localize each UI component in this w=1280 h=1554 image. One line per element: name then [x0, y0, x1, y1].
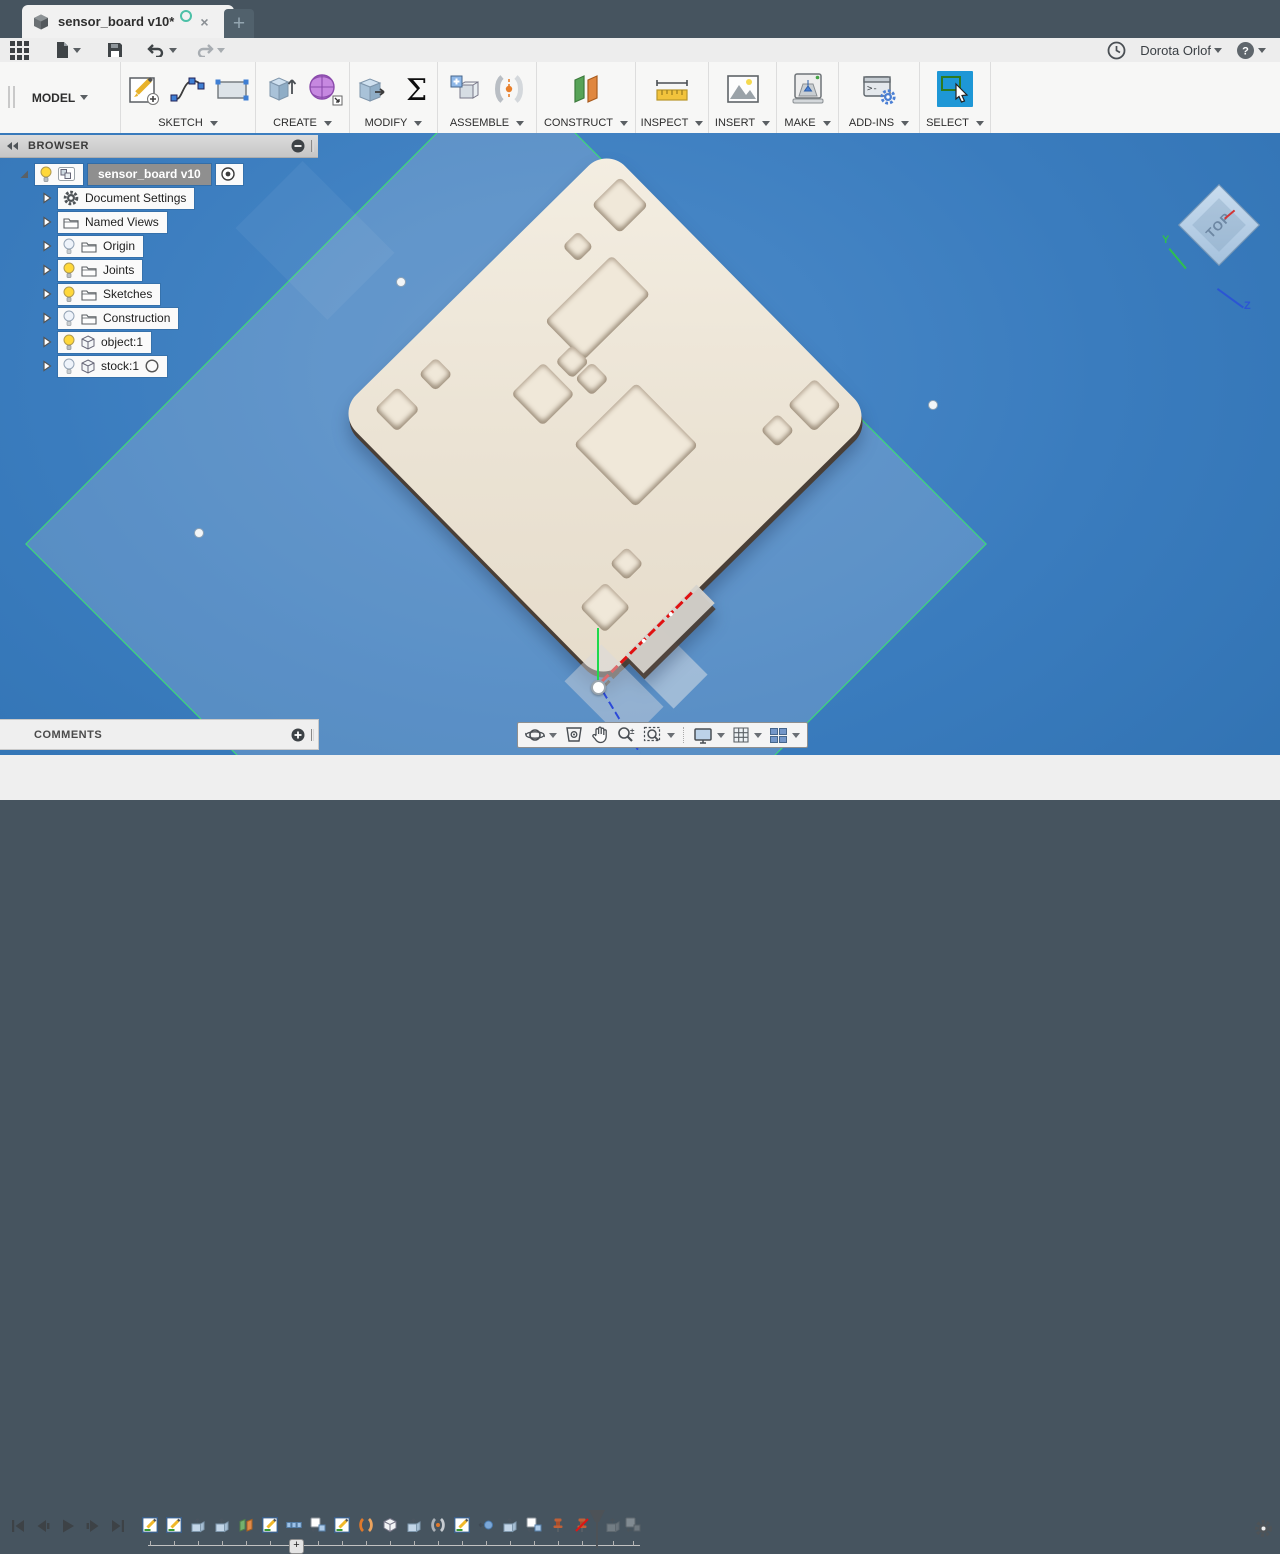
timeline-tick [486, 1541, 487, 1546]
board-pocket[interactable] [545, 255, 651, 360]
visibility-bulb-icon[interactable] [63, 358, 75, 375]
redo-button[interactable] [191, 38, 229, 62]
collapse-arrow-icon[interactable] [42, 288, 52, 300]
timeline-feature-extrude[interactable] [406, 1517, 422, 1533]
plane-button[interactable] [567, 69, 605, 109]
help-menu[interactable]: ? [1236, 41, 1266, 60]
group-label-text: INSERT [715, 117, 755, 129]
user-area: Dorota Orlof ? [1107, 41, 1280, 60]
go-to-end-button[interactable] [110, 1518, 126, 1534]
component-icon [58, 167, 75, 181]
sketch-point[interactable] [928, 400, 938, 410]
pan-icon [591, 726, 609, 744]
board-pocket[interactable] [760, 413, 794, 447]
new-component-button[interactable] [446, 69, 484, 109]
timeline-feature-sketch[interactable] [334, 1517, 350, 1533]
group-label-text: MODIFY [365, 117, 408, 129]
zoom-button[interactable]: ± [614, 725, 638, 745]
timeline-tick [222, 1541, 223, 1546]
collapse-panel-icon[interactable] [6, 141, 20, 151]
timeline-tick [366, 1541, 367, 1546]
sketch-point[interactable] [396, 277, 406, 287]
visibility-bulb-icon[interactable] [40, 166, 52, 183]
timeline-tick [342, 1541, 343, 1546]
collapse-arrow-icon[interactable] [42, 336, 52, 348]
group-label-text: SKETCH [158, 117, 203, 129]
orbit-icon [525, 726, 545, 744]
ribbon-group-label[interactable]: MODIFY [350, 113, 437, 133]
board-pocket[interactable] [574, 383, 698, 507]
board-pocket[interactable] [375, 387, 420, 432]
step-back-button[interactable] [35, 1518, 51, 1534]
timeline-feature-pin-off[interactable] [574, 1517, 590, 1533]
group-label-text: ADD-INS [849, 117, 894, 129]
board-pocket[interactable] [562, 231, 593, 262]
play-icon [60, 1518, 76, 1534]
browser-row-label: Joints [103, 263, 134, 277]
group-label-text: CONSTRUCT [544, 117, 613, 129]
sketch-point[interactable] [194, 528, 204, 538]
timeline-tick [198, 1541, 199, 1546]
comments-panel-title: COMMENTS [34, 729, 102, 741]
timeline-settings-icon[interactable] [1254, 1519, 1273, 1538]
joint-button[interactable] [490, 69, 528, 109]
timeline-feature-joint2[interactable] [430, 1517, 446, 1533]
ribbon-group-label[interactable]: INSERT [709, 113, 776, 133]
timeline-tick [246, 1541, 247, 1546]
expand-arrow-icon[interactable] [18, 168, 30, 180]
timeline-feature-component-suppressed[interactable] [625, 1517, 641, 1533]
timeline-feature-sketch[interactable] [166, 1517, 182, 1533]
visibility-bulb-icon[interactable] [63, 310, 75, 327]
rectangle-button[interactable] [213, 69, 251, 109]
gear-icon [63, 190, 79, 206]
dropdown-caret-icon[interactable] [717, 733, 725, 738]
timeline-feature-pin[interactable] [550, 1517, 566, 1533]
folder-icon [81, 264, 97, 277]
ribbon-group-label[interactable]: CREATE [256, 113, 349, 133]
press-pull-icon [355, 72, 389, 106]
zoom-icon: ± [616, 726, 636, 744]
group-label-text: ASSEMBLE [450, 117, 509, 129]
browser-row-sensor-board-v10[interactable]: sensor_board v10 [18, 162, 318, 186]
timeline-tick [582, 1541, 583, 1546]
parameters-icon: Σ [403, 72, 429, 106]
timeline-feature-extrude[interactable] [214, 1517, 230, 1533]
y-axis-indicator [1168, 248, 1186, 269]
svg-text:?: ? [1242, 45, 1249, 57]
dropdown-caret-icon[interactable] [667, 733, 675, 738]
measure-icon [654, 74, 690, 104]
timeline-tick [510, 1541, 511, 1546]
save-button[interactable] [103, 38, 127, 62]
browser-row-label: Origin [103, 239, 135, 253]
browser-row-label: Document Settings [85, 191, 186, 205]
spline-button[interactable] [169, 69, 207, 109]
timeline-tick [438, 1541, 439, 1546]
group-label-text: MAKE [784, 117, 815, 129]
select-icon [940, 74, 970, 104]
timeline-bar: + [0, 755, 1280, 800]
ribbon-group-modify: ΣMODIFY [350, 62, 438, 133]
board-pocket[interactable] [610, 547, 644, 581]
scripts-icon: >- [861, 73, 897, 105]
ribbon-group-label[interactable]: SELECT [920, 113, 990, 133]
timeline-tick [558, 1541, 559, 1546]
insert-image-button[interactable] [724, 69, 762, 109]
browser-row-joints[interactable]: Joints [18, 258, 318, 282]
dropdown-caret-icon[interactable] [792, 733, 800, 738]
application-bar: Dorota Orlof ? [0, 38, 1280, 63]
ribbon-group-label[interactable]: SKETCH [121, 113, 255, 133]
ribbon-group-label[interactable]: ADD-INS [839, 113, 919, 133]
ribbon-group-label[interactable]: CONSTRUCT [537, 113, 635, 133]
ribbon-group-select: SELECT [920, 62, 991, 133]
timeline-playhead-line [596, 1519, 598, 1548]
panel-drag-handle[interactable] [311, 140, 312, 152]
document-tab[interactable]: sensor_board v10* × [22, 5, 234, 38]
browser-row-label: Sketches [103, 287, 152, 301]
y-axis-label: Y [1162, 234, 1169, 246]
create-sketch-button[interactable] [125, 69, 163, 109]
undo-icon [147, 43, 166, 57]
svg-text:±: ± [630, 727, 635, 736]
timeline-feature-sketch[interactable] [262, 1517, 278, 1533]
workspace-label: MODEL [32, 91, 75, 105]
svg-text:>-: >- [867, 84, 878, 94]
board-pocket[interactable] [580, 582, 631, 633]
y-axis-line [597, 628, 599, 684]
toolbar-grip [8, 86, 15, 108]
press-pull-button[interactable] [353, 69, 391, 109]
svg-text:Σ: Σ [406, 73, 427, 106]
browser-row-label: Construction [103, 311, 170, 325]
measure-button[interactable] [653, 69, 691, 109]
browser-row-construction[interactable]: Construction [18, 306, 318, 330]
scripts-button[interactable]: >- [860, 69, 898, 109]
timeline-tick [633, 1541, 634, 1546]
create-sketch-icon [127, 72, 161, 106]
fit-button[interactable] [641, 725, 677, 745]
user-menu[interactable]: Dorota Orlof [1140, 43, 1222, 58]
browser-row-named-views[interactable]: Named Views [18, 210, 318, 234]
visibility-bulb-icon[interactable] [63, 286, 75, 303]
collapse-arrow-icon[interactable] [42, 312, 52, 324]
timeline-tick [270, 1541, 271, 1546]
timeline-tick [414, 1541, 415, 1546]
browser-row-origin[interactable]: Origin [18, 234, 318, 258]
redo-icon [195, 43, 214, 57]
folder-icon [81, 312, 97, 325]
folder-icon [81, 288, 97, 301]
ribbon-group-create: CREATE [256, 62, 350, 133]
browser-row-label: stock:1 [101, 359, 139, 373]
activate-component-icon[interactable] [221, 167, 235, 181]
ribbon-group-add-ins: >-ADD-INS [839, 62, 920, 133]
ribbon-group-label[interactable]: INSPECT [636, 113, 708, 133]
timeline-feature-sketch[interactable] [454, 1517, 470, 1533]
collapse-arrow-icon[interactable] [42, 192, 52, 204]
timeline-feature-component[interactable] [310, 1517, 326, 1533]
print-button[interactable] [789, 69, 827, 109]
timeline-feature-body[interactable] [382, 1517, 398, 1533]
browser-row-label: object:1 [101, 335, 143, 349]
extrude-icon [264, 72, 298, 106]
panel-drag-handle[interactable] [311, 729, 312, 741]
rectangle-icon [214, 75, 250, 103]
timeline-tick [174, 1541, 175, 1546]
spline-icon [170, 74, 206, 104]
visibility-bulb-icon[interactable] [63, 334, 75, 351]
form-button[interactable] [306, 69, 344, 109]
group-label-text: SELECT [926, 117, 969, 129]
new-tab-button[interactable]: + [224, 9, 254, 38]
look-at-icon [564, 727, 584, 743]
comments-panel-header[interactable]: COMMENTS [0, 719, 319, 750]
navigation-bar: ± [517, 722, 808, 748]
orbit-button[interactable] [523, 725, 559, 745]
go-to-start-icon [10, 1518, 26, 1534]
look-at-button[interactable] [562, 726, 586, 744]
user-name: Dorota Orlof [1140, 43, 1211, 58]
group-label-text: CREATE [273, 117, 317, 129]
timeline-feature-pattern[interactable] [286, 1517, 302, 1533]
cube-icon [32, 13, 50, 31]
extrude-button[interactable] [262, 69, 300, 109]
workspace-selector[interactable]: MODEL [0, 62, 121, 133]
browser-row-object-1[interactable]: object:1 [18, 330, 318, 354]
body-icon [81, 335, 95, 350]
body-icon [81, 359, 95, 374]
app-grid-icon [10, 41, 29, 60]
browser-tree: sensor_board v10Document SettingsNamed V… [18, 162, 318, 378]
browser-row-sketches[interactable]: Sketches [18, 282, 318, 306]
timeline-feature-sketch[interactable] [142, 1517, 158, 1533]
go-to-start-button[interactable] [10, 1518, 26, 1534]
fit-icon [643, 726, 663, 744]
timeline-tick [534, 1541, 535, 1546]
timeline-zoom-handle[interactable]: + [289, 1539, 304, 1554]
add-comment-icon[interactable] [291, 728, 305, 742]
folder-icon [81, 240, 97, 253]
play-button[interactable] [60, 1518, 76, 1534]
go-to-end-icon [110, 1518, 126, 1534]
insert-image-icon [726, 73, 760, 105]
timeline-feature-extrude-suppressed[interactable] [605, 1517, 621, 1533]
undo-button[interactable] [143, 38, 181, 62]
document-title: sensor_board v10* [58, 14, 174, 29]
display-button[interactable] [691, 726, 727, 745]
browser-row-document-settings[interactable]: Document Settings [18, 186, 318, 210]
step-back-icon [35, 1518, 51, 1534]
ribbon-group-label[interactable]: ASSEMBLE [438, 113, 536, 133]
display-icon [693, 727, 713, 744]
browser-row-label: sensor_board v10 [98, 167, 201, 181]
timeline-tick [390, 1541, 391, 1546]
timeline-feature-joint[interactable] [358, 1517, 374, 1533]
timeline-feature-plane[interactable] [238, 1517, 254, 1533]
origin-point[interactable] [591, 680, 606, 695]
board-pocket[interactable] [788, 378, 842, 432]
activate-circle-icon[interactable] [145, 359, 159, 373]
file-icon [55, 41, 70, 59]
print-icon [791, 72, 825, 106]
z-axis-indicator [1217, 288, 1244, 308]
timeline-tick [462, 1541, 463, 1546]
z-axis-label: Z [1244, 300, 1251, 312]
visibility-bulb-icon[interactable] [63, 238, 75, 255]
app-grid-button[interactable] [0, 38, 33, 62]
timeline-tick [613, 1541, 614, 1546]
ribbon-group-label[interactable]: MAKE [777, 113, 838, 133]
group-label-text: INSPECT [641, 117, 689, 129]
collapse-arrow-icon[interactable] [42, 360, 52, 372]
save-icon [107, 42, 123, 58]
collapse-arrow-icon[interactable] [42, 240, 52, 252]
grid-button[interactable] [730, 725, 764, 745]
new-component-icon [448, 73, 482, 105]
timeline-transport [10, 1518, 126, 1534]
view-cube[interactable]: TOP Y Z [1180, 133, 1270, 268]
help-icon: ? [1236, 41, 1255, 60]
board-pocket[interactable] [592, 177, 649, 234]
ribbon-group-make: MAKE [777, 62, 839, 133]
dropdown-caret-icon[interactable] [754, 733, 762, 738]
browser-panel-title: BROWSER [28, 140, 89, 152]
close-tab-icon[interactable]: × [200, 14, 208, 30]
timeline-feature-point[interactable] [478, 1517, 494, 1533]
step-forward-icon [85, 1518, 101, 1534]
visibility-bulb-icon[interactable] [63, 262, 75, 279]
browser-row-label: Named Views [85, 215, 159, 229]
timeline-feature-extrude[interactable] [502, 1517, 518, 1533]
minimize-panel-icon[interactable] [291, 139, 305, 153]
ribbon-toolbar: MODEL SKETCHCREATEΣMODIFYASSEMBLECONSTRU… [0, 62, 1280, 133]
sync-status-icon [180, 10, 192, 22]
collapse-arrow-icon[interactable] [42, 216, 52, 228]
form-icon [307, 72, 343, 106]
collapse-arrow-icon[interactable] [42, 264, 52, 276]
browser-panel-header[interactable]: BROWSER [0, 135, 318, 158]
timeline-feature-extrude[interactable] [190, 1517, 206, 1533]
pan-button[interactable] [589, 725, 611, 745]
grid-icon [732, 726, 750, 744]
tab-bar: sensor_board v10* × + [0, 0, 1280, 38]
file-menu-button[interactable] [51, 38, 85, 62]
viewports-button[interactable] [767, 726, 802, 745]
select-button[interactable] [937, 71, 973, 107]
timeline-feature-component[interactable] [526, 1517, 542, 1533]
ribbon-group-insert: INSERT [709, 62, 777, 133]
ribbon-group-sketch: SKETCH [121, 62, 256, 133]
view-cube-face[interactable]: TOP [1178, 184, 1260, 266]
plane-icon [570, 72, 602, 106]
joint-icon [492, 73, 526, 105]
folder-icon [63, 216, 79, 229]
browser-row-stock-1[interactable]: stock:1 [18, 354, 318, 378]
ribbon-group-construct: CONSTRUCT [537, 62, 636, 133]
step-forward-button[interactable] [85, 1518, 101, 1534]
ribbon-group-assemble: ASSEMBLE [438, 62, 537, 133]
parameters-button[interactable]: Σ [397, 69, 435, 109]
timeline-tick [150, 1541, 151, 1546]
dropdown-caret-icon[interactable] [549, 733, 557, 738]
ribbon-group-inspect: INSPECT [636, 62, 709, 133]
board-pocket[interactable] [419, 357, 453, 391]
viewports-icon [769, 727, 788, 744]
timeline-tick [318, 1541, 319, 1546]
recent-activity-icon[interactable] [1107, 41, 1126, 60]
